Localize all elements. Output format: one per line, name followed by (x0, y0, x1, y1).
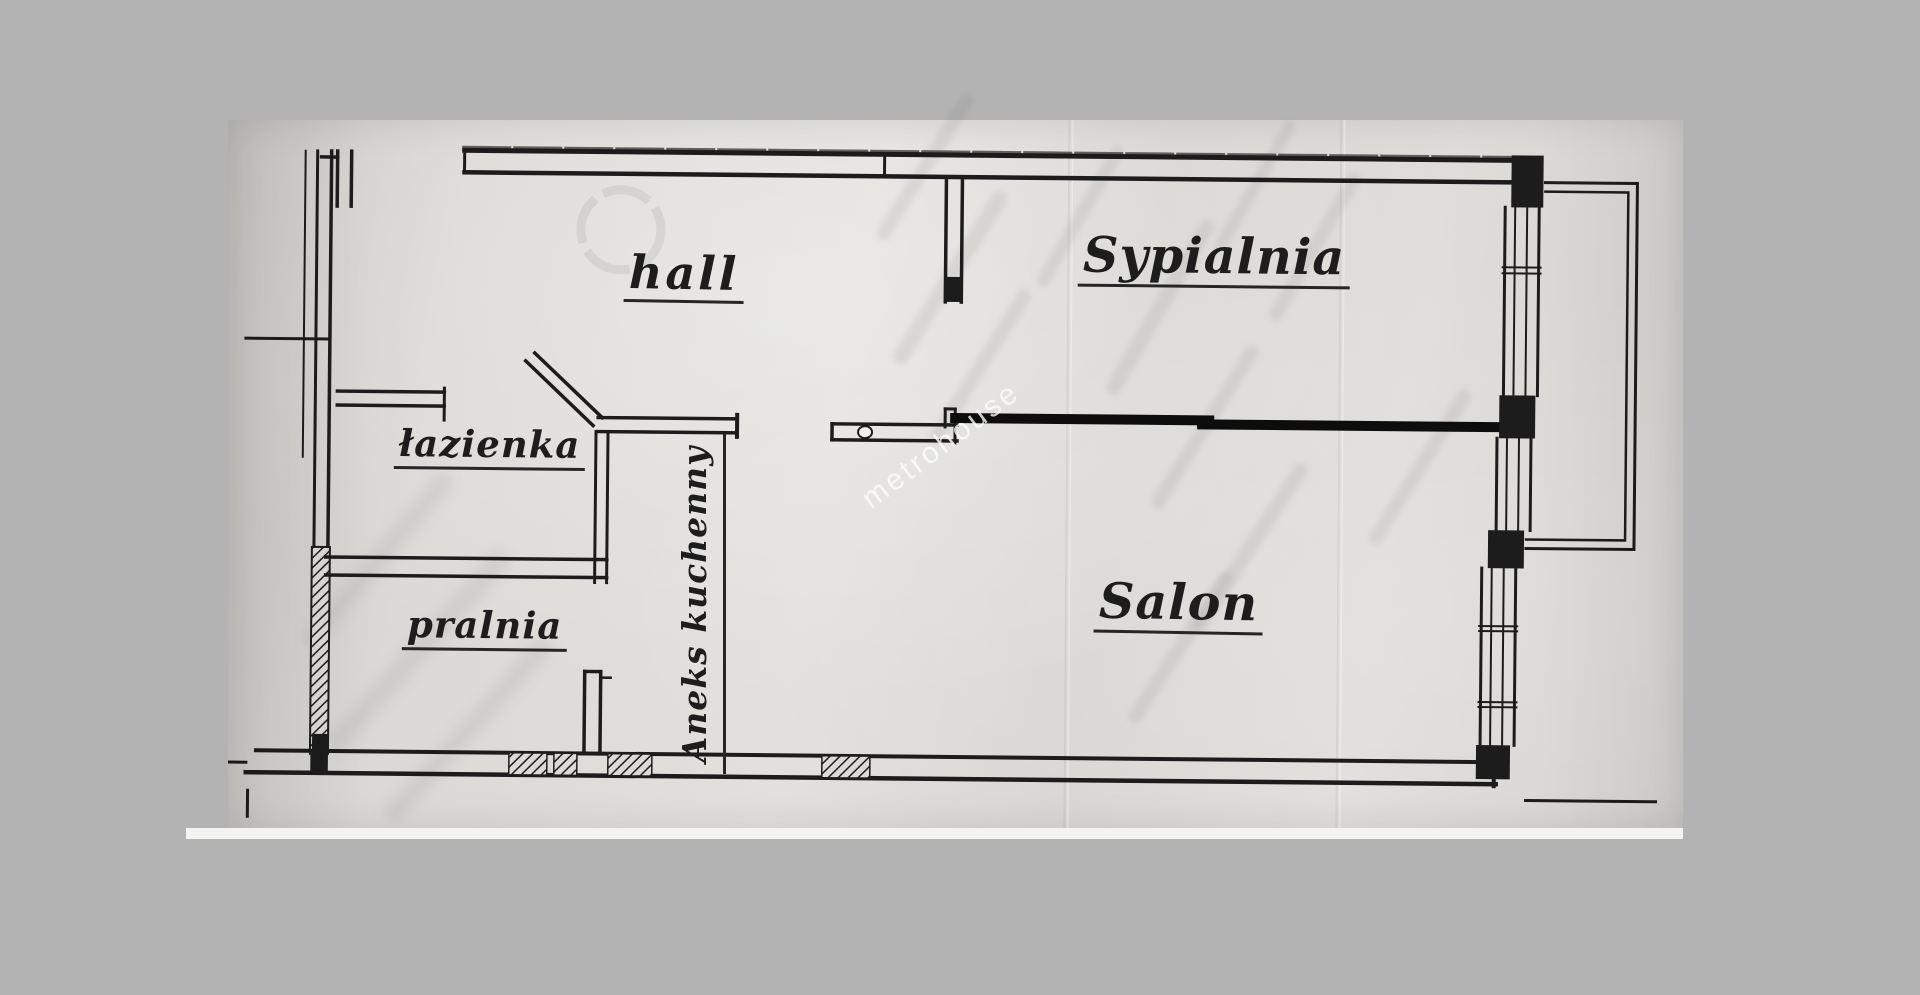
wall-bold-divider (955, 418, 1503, 427)
window-column-right (1476, 155, 1544, 780)
floorplan-drawing (228, 120, 1683, 828)
screenshot-root: hall Sypialnia łazienka pralnia Aneks ku… (0, 0, 1920, 995)
wall-top (465, 148, 1512, 182)
room-label-bathroom: łazienka (394, 425, 586, 471)
room-label-kitchenette: Aneks kuchenny (678, 434, 726, 774)
ink-layer (228, 143, 1662, 828)
wall-hall-bedroom-stub (945, 177, 962, 302)
room-label-living-room: Salon (1094, 577, 1264, 636)
wall-left (242, 150, 334, 773)
paper-edge-strip (186, 828, 1683, 839)
room-label-bedroom: Sypialnia (1078, 231, 1351, 290)
wall-entry-jamb (321, 151, 352, 206)
balcony-outline (1526, 182, 1638, 549)
wall-bottom (246, 750, 1496, 786)
room-label-laundry: pralnia (402, 606, 568, 651)
room-label-hall: hall (624, 249, 745, 304)
floorplan-photo: hall Sypialnia łazienka pralnia Aneks ku… (228, 120, 1683, 828)
wall-laundry-stub (584, 671, 611, 753)
